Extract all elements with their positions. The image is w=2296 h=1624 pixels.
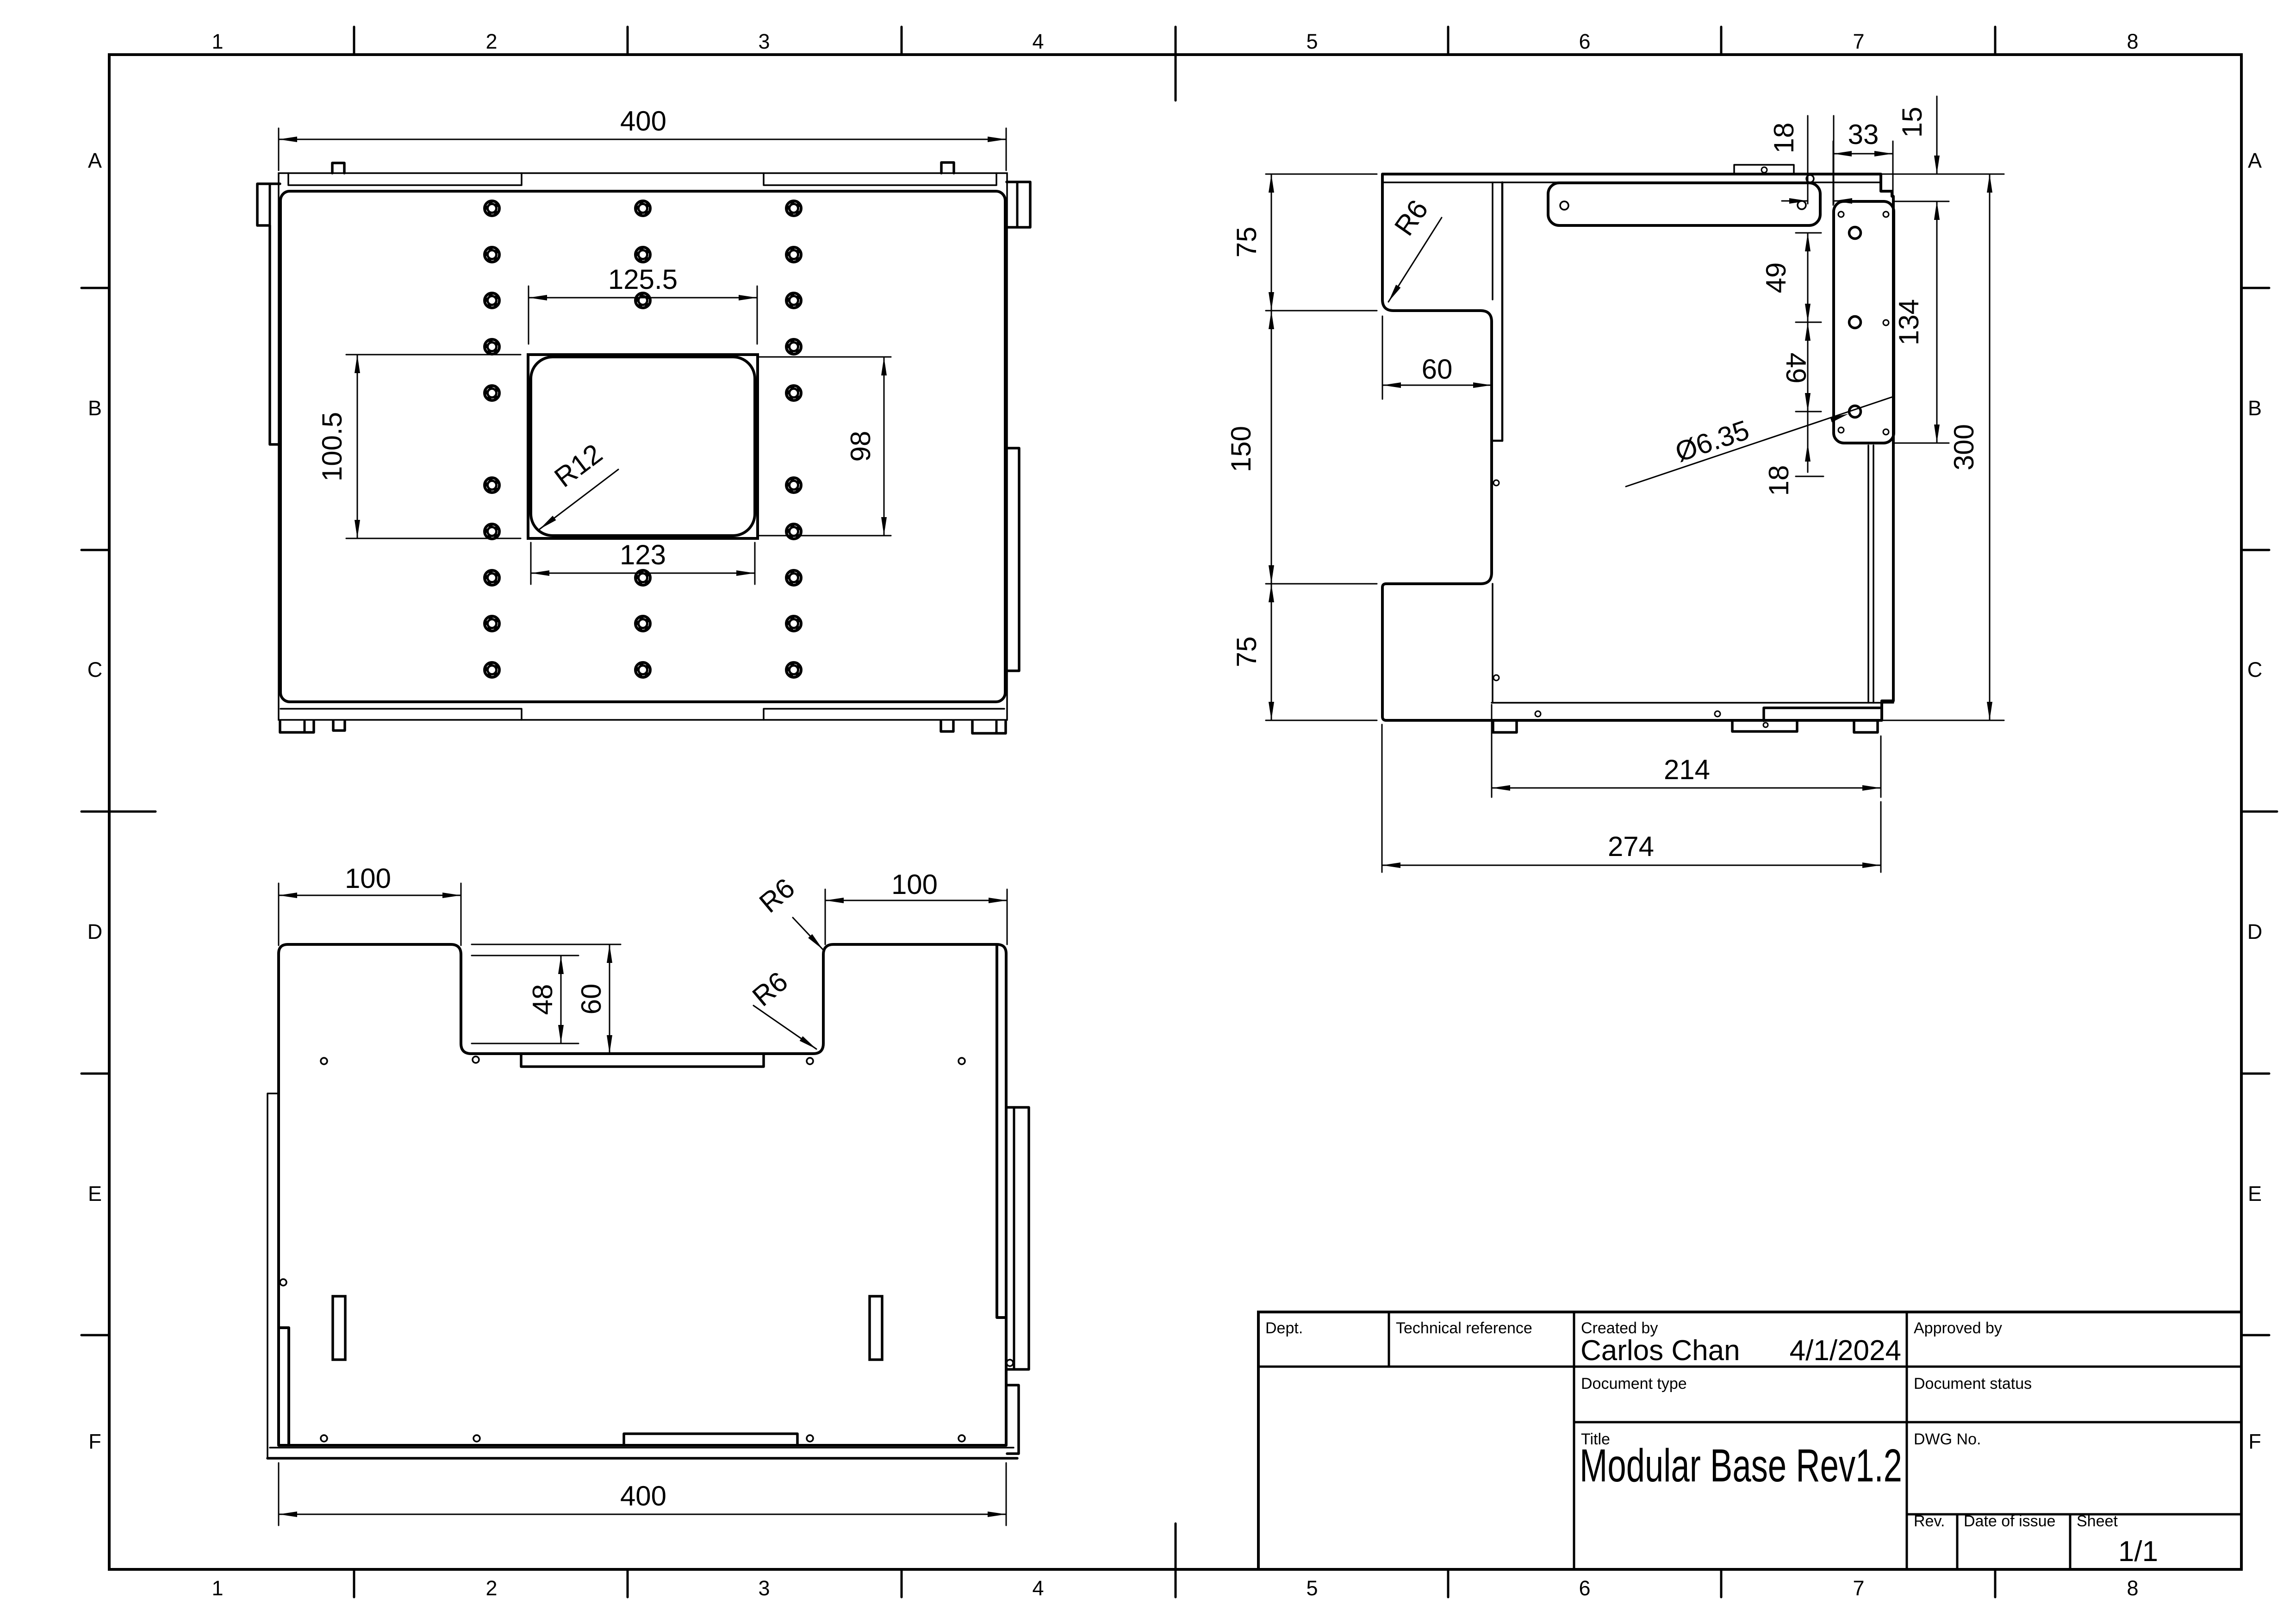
svg-text:2: 2	[485, 1576, 497, 1600]
svg-text:49: 49	[1761, 262, 1792, 294]
svg-text:Approved by: Approved by	[1914, 1319, 2002, 1337]
svg-text:48: 48	[527, 984, 558, 1015]
svg-text:274: 274	[1608, 831, 1654, 862]
svg-text:3: 3	[758, 1576, 770, 1600]
svg-text:1/1: 1/1	[2118, 1536, 2158, 1568]
svg-text:Dept.: Dept.	[1265, 1319, 1303, 1337]
svg-text:300: 300	[1948, 424, 1979, 470]
svg-text:A: A	[88, 149, 102, 172]
svg-text:18: 18	[1763, 465, 1794, 496]
svg-text:Date of issue: Date of issue	[1964, 1512, 2055, 1530]
svg-text:4/1/2024: 4/1/2024	[1790, 1335, 1901, 1367]
svg-text:Technical reference: Technical reference	[1396, 1319, 1532, 1337]
svg-text:7: 7	[1853, 30, 1864, 53]
svg-text:C: C	[2247, 658, 2263, 681]
svg-text:E: E	[2248, 1182, 2262, 1206]
svg-text:Document type: Document type	[1581, 1375, 1687, 1393]
svg-text:15: 15	[1897, 107, 1928, 138]
svg-text:C: C	[87, 658, 103, 681]
svg-text:400: 400	[620, 1480, 666, 1512]
svg-text:98: 98	[845, 431, 876, 462]
svg-text:Sheet: Sheet	[2077, 1512, 2118, 1530]
svg-text:Carlos Chan: Carlos Chan	[1580, 1335, 1740, 1367]
svg-text:18: 18	[1768, 123, 1799, 154]
svg-text:60: 60	[1422, 354, 1453, 385]
svg-text:4: 4	[1032, 30, 1044, 53]
svg-text:123: 123	[620, 539, 666, 570]
svg-text:75: 75	[1231, 227, 1262, 258]
svg-text:3: 3	[758, 30, 770, 53]
svg-text:6: 6	[1579, 30, 1590, 53]
svg-text:150: 150	[1226, 426, 1257, 472]
svg-text:1: 1	[212, 30, 223, 53]
svg-text:F: F	[88, 1430, 101, 1453]
svg-text:F: F	[2248, 1430, 2261, 1453]
svg-text:B: B	[2248, 396, 2262, 420]
svg-text:100.5: 100.5	[317, 412, 348, 481]
svg-text:E: E	[88, 1182, 102, 1206]
svg-text:Modular Base Rev1.2: Modular Base Rev1.2	[1580, 1440, 1902, 1492]
svg-text:33: 33	[1848, 119, 1879, 150]
svg-text:8: 8	[2127, 30, 2138, 53]
svg-text:49: 49	[1780, 353, 1811, 384]
svg-text:6: 6	[1579, 1576, 1590, 1600]
svg-text:Document status: Document status	[1914, 1375, 2032, 1393]
svg-text:7: 7	[1853, 1576, 1864, 1600]
svg-text:8: 8	[2127, 1576, 2138, 1600]
svg-text:125.5: 125.5	[608, 264, 678, 295]
svg-text:B: B	[88, 396, 102, 420]
svg-text:D: D	[87, 920, 103, 943]
svg-text:4: 4	[1032, 1576, 1044, 1600]
svg-text:Rev.: Rev.	[1914, 1512, 1945, 1530]
svg-text:75: 75	[1231, 637, 1262, 668]
svg-text:5: 5	[1306, 30, 1318, 53]
svg-text:60: 60	[576, 984, 607, 1015]
svg-text:1: 1	[212, 1576, 223, 1600]
svg-text:134: 134	[1893, 299, 1924, 345]
svg-text:D: D	[2247, 920, 2263, 943]
svg-text:100: 100	[345, 863, 391, 894]
svg-text:2: 2	[485, 30, 497, 53]
svg-text:214: 214	[1664, 754, 1710, 785]
svg-text:400: 400	[620, 106, 666, 137]
svg-text:DWG No.: DWG No.	[1914, 1430, 1981, 1448]
svg-text:100: 100	[891, 869, 938, 900]
svg-text:5: 5	[1306, 1576, 1318, 1600]
svg-text:A: A	[2248, 149, 2262, 172]
